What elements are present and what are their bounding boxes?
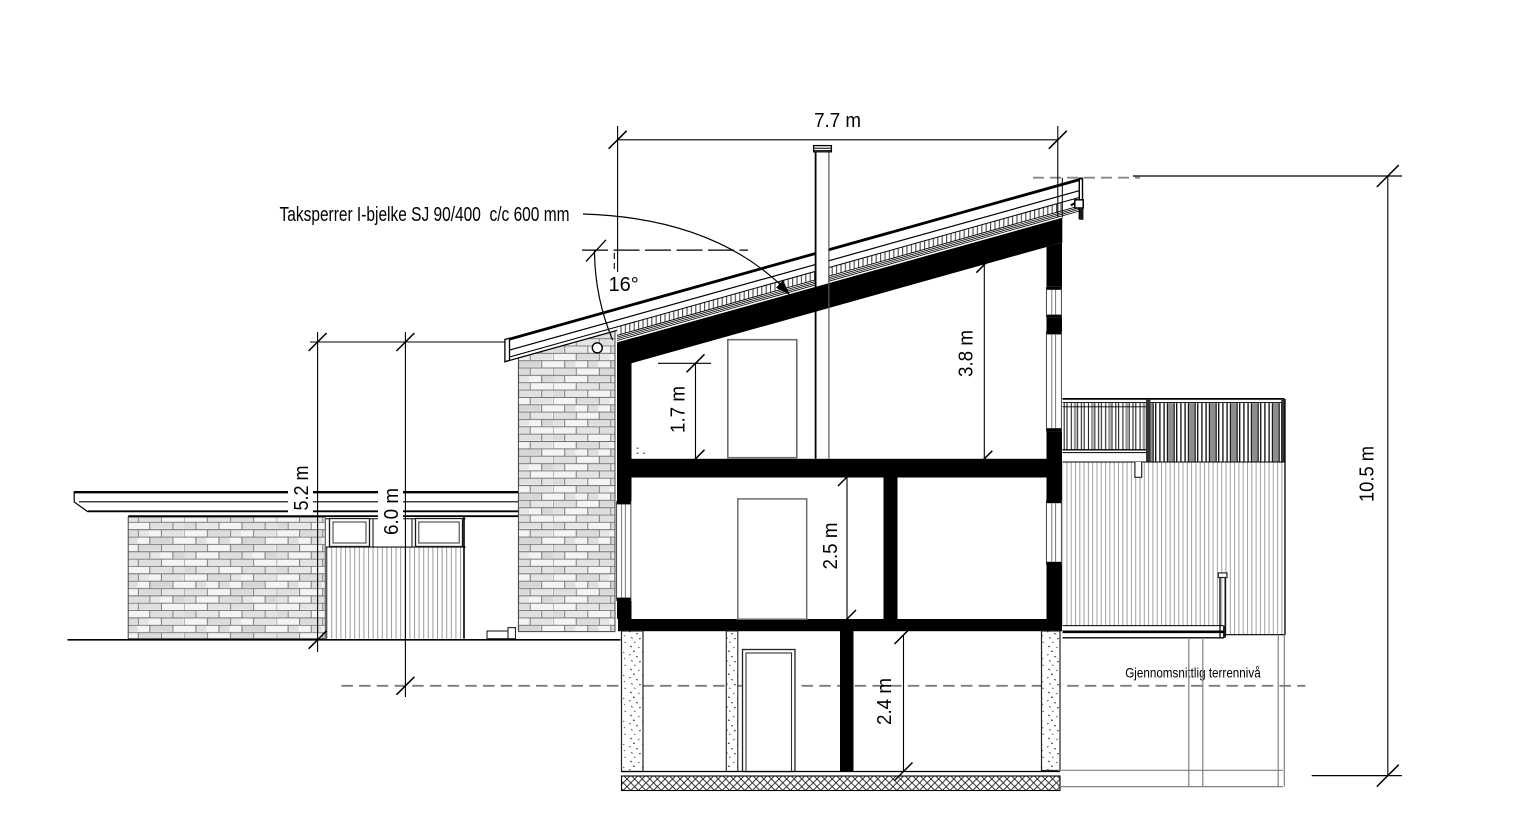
svg-text:2.5 m: 2.5 m — [820, 523, 842, 570]
svg-text:5.2 m: 5.2 m — [291, 466, 313, 511]
svg-text:7.7 m: 7.7 m — [814, 110, 861, 132]
svg-text:10.5 m: 10.5 m — [1357, 446, 1379, 502]
svg-text:16°: 16° — [609, 274, 639, 296]
svg-text:Taksperrer I-bjelke SJ 90/400: Taksperrer I-bjelke SJ 90/400 c/c 600 mm — [280, 204, 570, 226]
svg-text:1.7 m: 1.7 m — [667, 386, 689, 433]
svg-text:3.8 m: 3.8 m — [956, 330, 978, 377]
svg-text:6.0 m: 6.0 m — [381, 488, 403, 535]
svg-text:Gjennomsnittlig terrennivå: Gjennomsnittlig terrennivå — [1125, 665, 1261, 681]
svg-text:2.4 m: 2.4 m — [874, 678, 896, 725]
